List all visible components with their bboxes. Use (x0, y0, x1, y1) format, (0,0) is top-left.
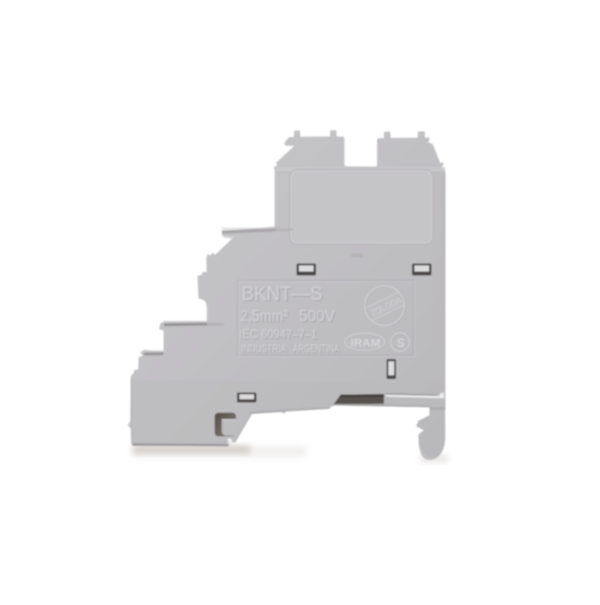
svg-text:500V: 500V (299, 308, 335, 325)
svg-text:BKNT—S: BKNT—S (242, 283, 323, 305)
svg-text:INDUSTRIA: INDUSTRIA (241, 343, 287, 355)
svg-text:ARGENTINA: ARGENTINA (293, 343, 340, 355)
svg-text:IEC 60947–7–1: IEC 60947–7–1 (239, 327, 317, 341)
svg-text:IRAM: IRAM (351, 338, 381, 350)
svg-text:2,5mm²: 2,5mm² (240, 308, 289, 325)
svg-text:S: S (397, 336, 405, 350)
